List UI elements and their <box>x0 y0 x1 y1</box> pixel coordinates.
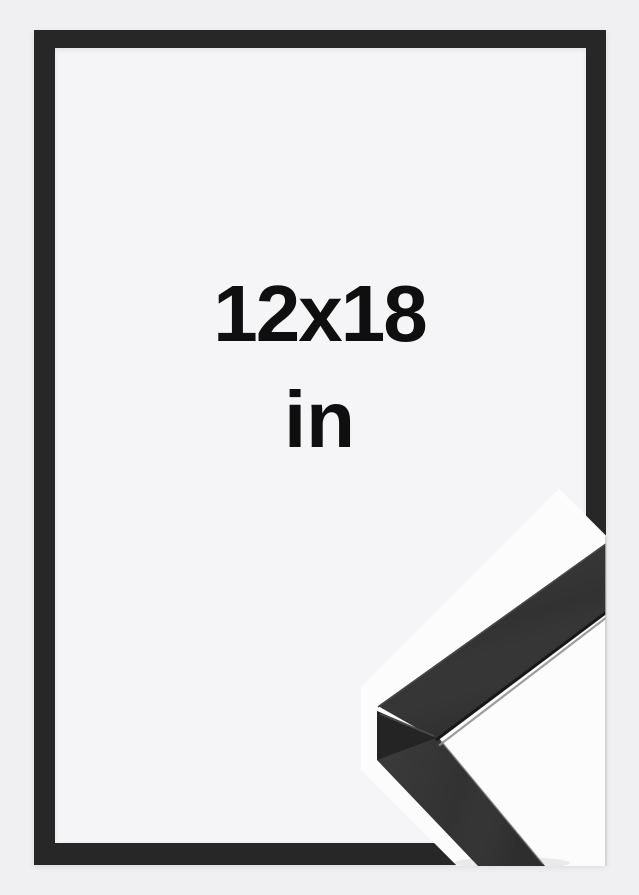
product-photo: 12x18 in <box>0 0 639 895</box>
corner-detail-inset <box>0 0 639 895</box>
